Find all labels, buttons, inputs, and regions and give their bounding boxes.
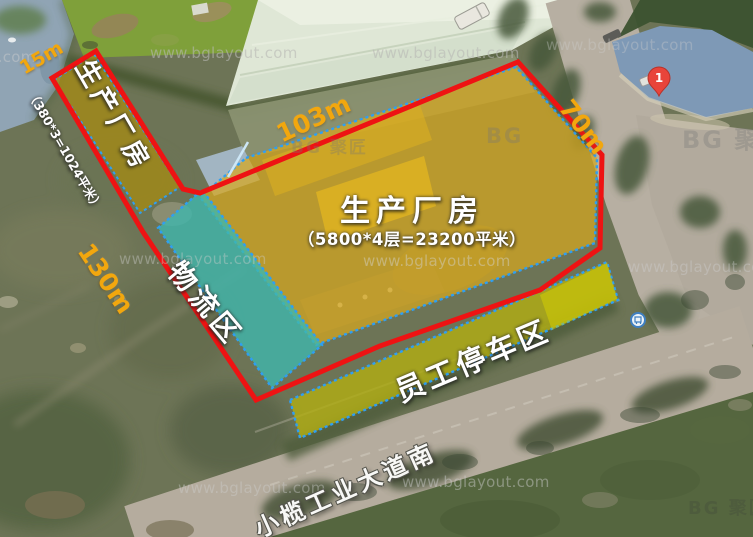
pin-number: 1 xyxy=(655,71,663,85)
watermark: www.bglayout.com xyxy=(372,44,520,62)
logo-watermark: BG xyxy=(486,124,523,148)
logo-bg: BG xyxy=(688,498,721,519)
transit-stop-icon[interactable] xyxy=(631,313,645,327)
logo-cn: 聚匠 xyxy=(734,126,753,154)
main-factory-label: 生产厂房 xyxy=(292,186,532,230)
logo-cn: 聚匠 xyxy=(330,138,368,158)
watermark: www.bglayout.com xyxy=(150,44,298,62)
logo-bg: BG xyxy=(486,124,523,148)
logo-watermark: BG 聚匠 xyxy=(688,494,753,520)
logo-cn: 聚匠 xyxy=(729,498,753,519)
logo-bg: BG xyxy=(682,126,724,154)
watermark: www.bglayout.com xyxy=(546,36,694,54)
aerial-site-plan: 1 www.bglayout.com www.bglayout.com www.… xyxy=(0,0,753,537)
main-factory-area: （5800*4层=23200平米） xyxy=(262,226,562,250)
watermark: www.bglayout.com xyxy=(363,252,511,270)
watermark: www.bglayout.com xyxy=(402,473,550,491)
watermark: www.bglayout.com xyxy=(628,258,753,276)
logo-watermark: BG 聚匠 xyxy=(682,120,753,155)
